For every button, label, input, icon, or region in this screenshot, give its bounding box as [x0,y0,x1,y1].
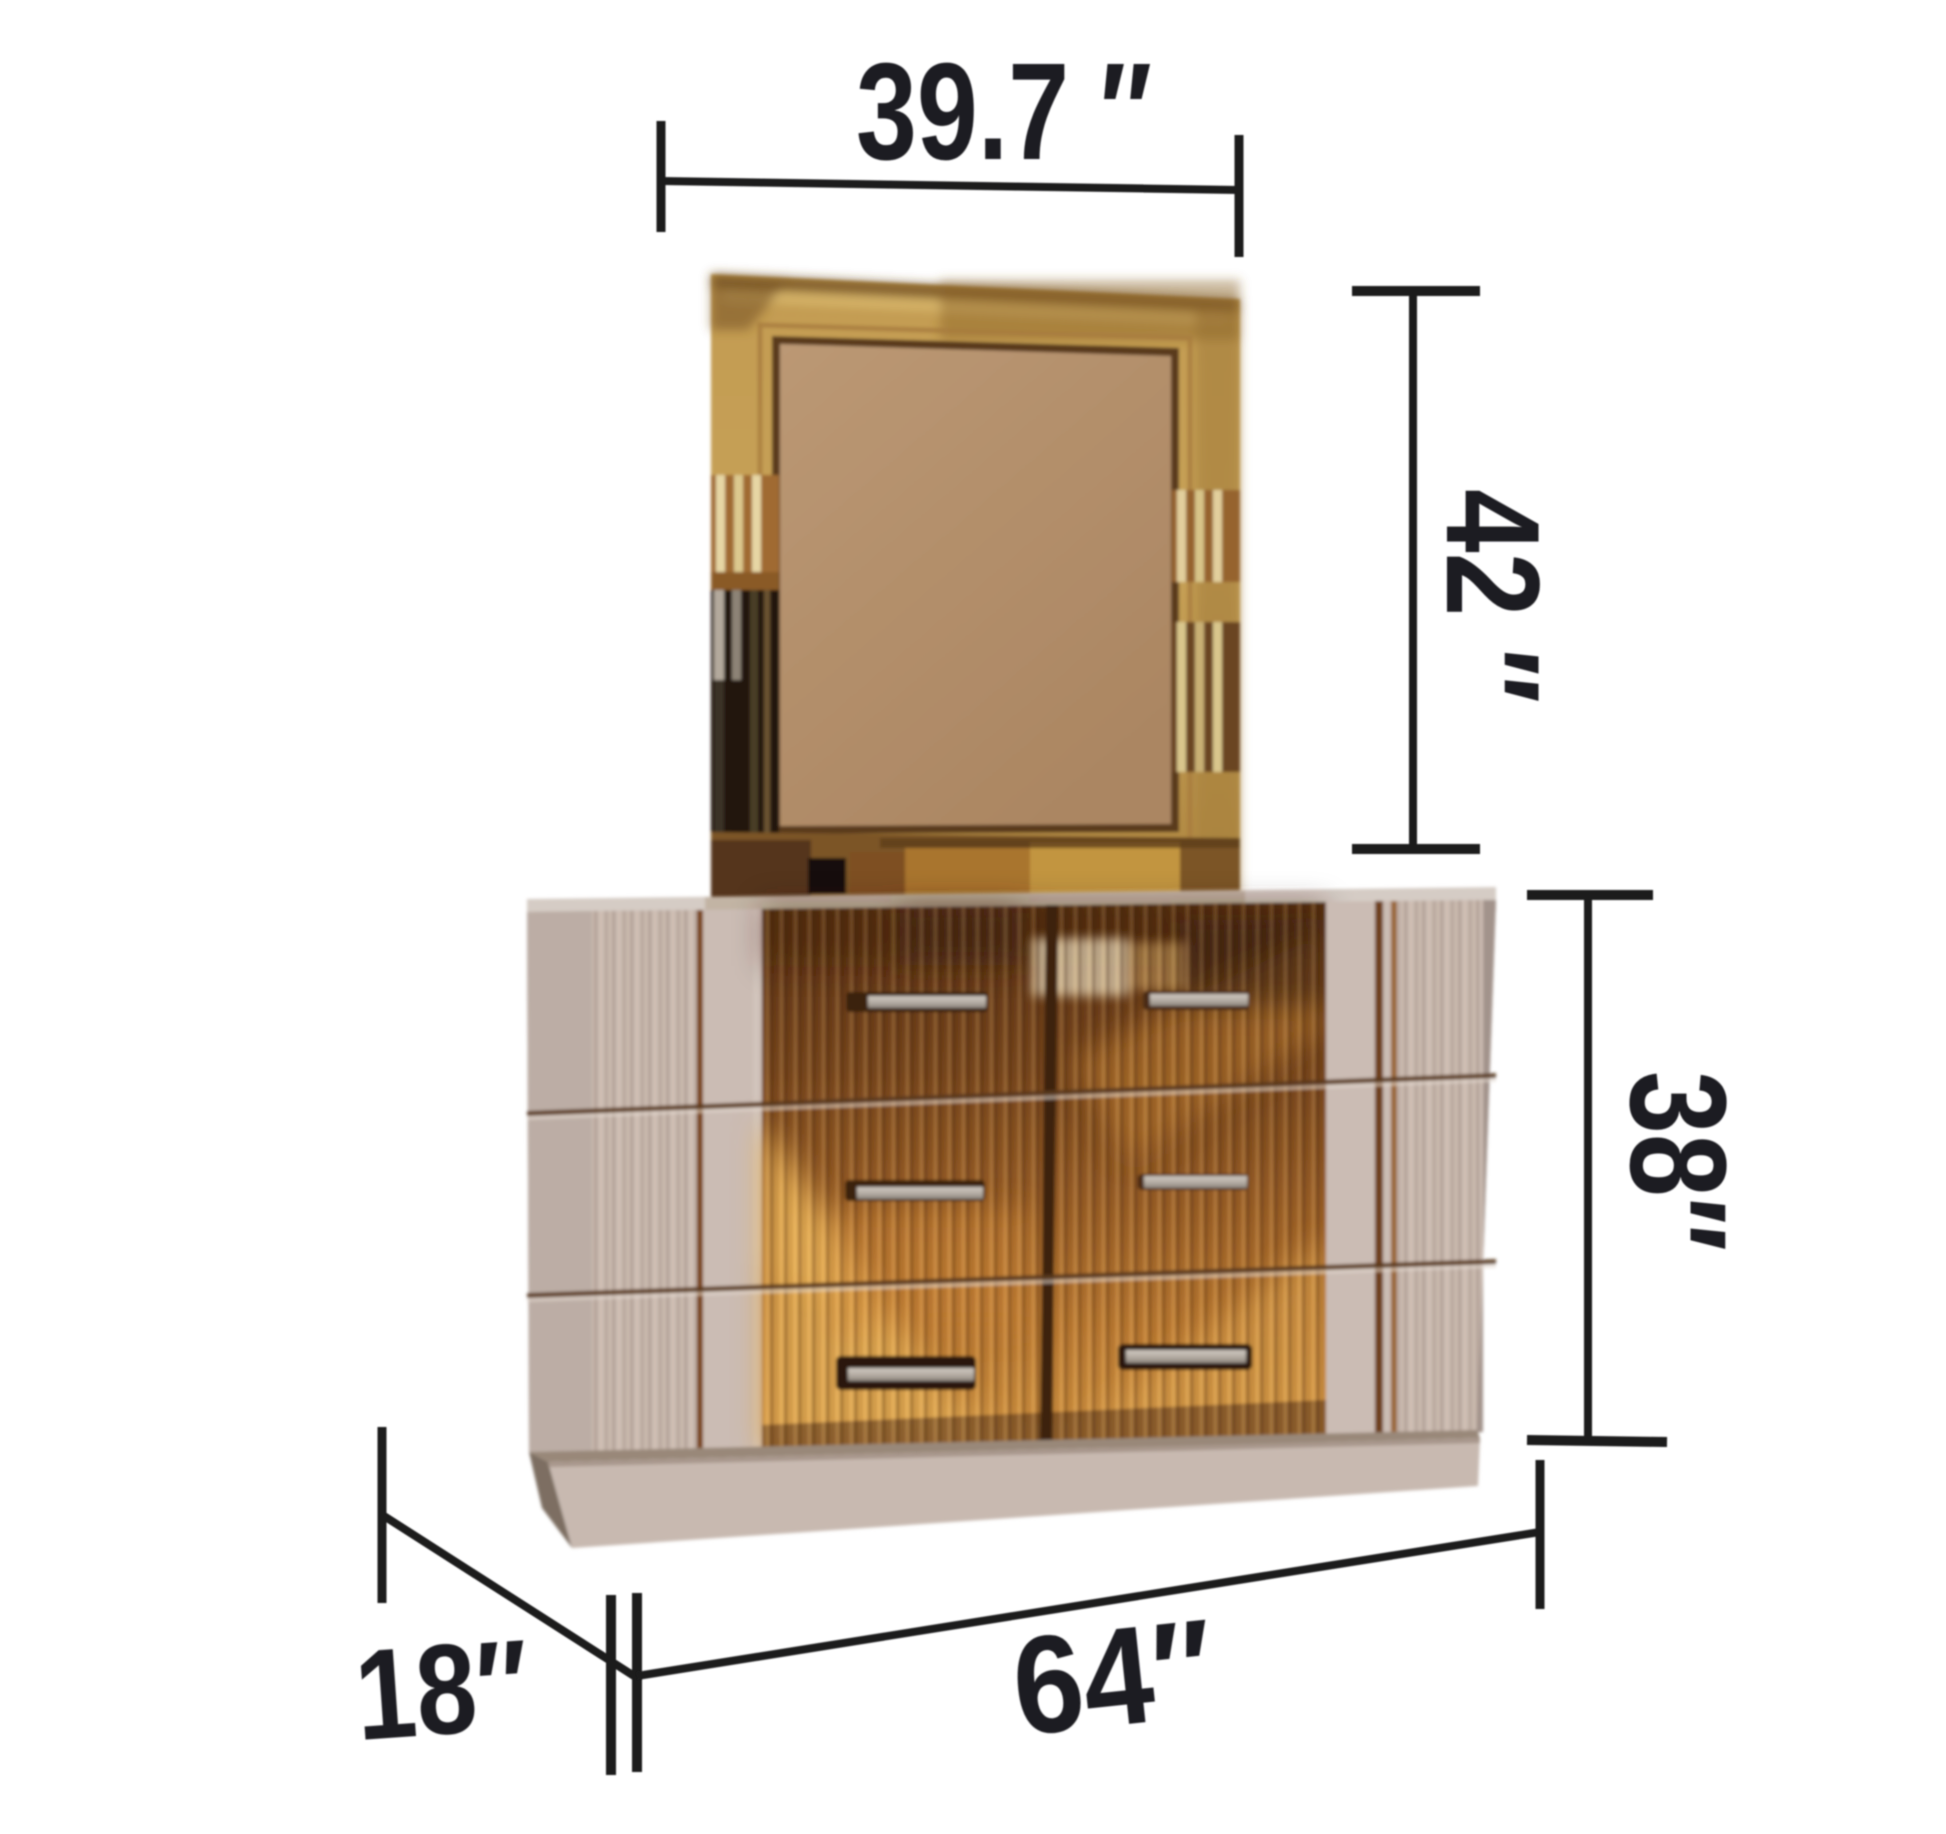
svg-text:38″: 38″ [1601,1071,1754,1251]
svg-text:64″: 64″ [1005,1590,1220,1765]
svg-text:39.7 ″: 39.7 ″ [856,35,1152,189]
svg-text:42 ″: 42 ″ [1418,489,1566,703]
svg-text:18″: 18″ [351,1613,534,1768]
